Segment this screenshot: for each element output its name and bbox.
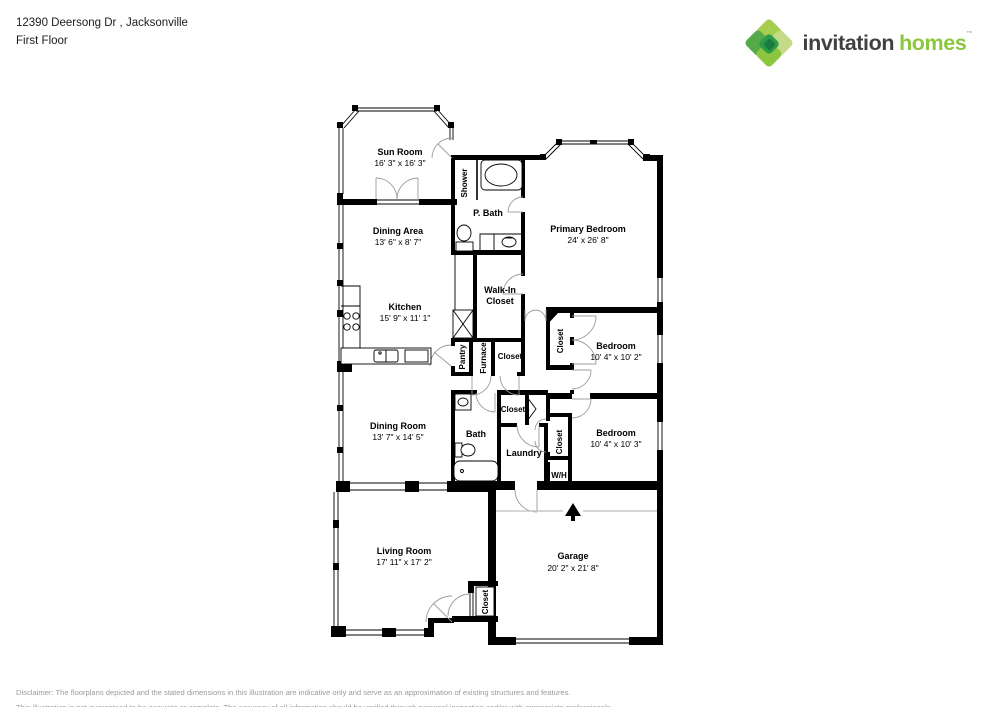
label-wh: W/H <box>551 471 567 480</box>
label-bath: Bath <box>466 429 486 439</box>
disclaimer-line1: Disclaimer: The floorplans depicted and … <box>16 686 996 701</box>
north-arrow-icon <box>565 503 581 521</box>
sink-icon <box>502 237 516 247</box>
label-walk-in-1: Walk-In <box>484 285 516 295</box>
dims-dining-room: 13' 7" x 14' 5" <box>372 432 423 442</box>
label-furnace: Furnace <box>479 342 488 374</box>
dims-dining-area: 13' 6" x 8' 7" <box>375 237 422 247</box>
stove-icon <box>344 313 350 319</box>
label-walk-in-2: Closet <box>486 296 514 306</box>
toilet-icon <box>456 242 473 251</box>
label-closet-entry: Closet <box>481 589 490 614</box>
label-sun-room: Sun Room <box>378 147 423 157</box>
dims-kitchen: 15' 9" x 11' 1" <box>380 313 431 323</box>
label-closet-hall: Closet <box>498 352 523 361</box>
label-dining-area: Dining Area <box>373 226 424 236</box>
label-living-room: Living Room <box>377 546 432 556</box>
label-p-bath: P. Bath <box>473 208 503 218</box>
label-closet-bath: Closet <box>501 405 526 414</box>
dims-bedroom2: 10' 4" x 10' 3" <box>590 439 641 449</box>
dims-sun-room: 16' 3" x 16' 3" <box>374 158 425 168</box>
label-primary-bedroom: Primary Bedroom <box>550 224 626 234</box>
label-laundry: Laundry <box>506 448 542 458</box>
label-bedroom2: Bedroom <box>596 428 636 438</box>
dims-living-room: 17' 11" x 17' 2" <box>376 557 431 567</box>
dims-garage: 20' 2" x 21' 8" <box>547 563 598 573</box>
label-pantry: Pantry <box>458 344 467 369</box>
label-closet-bed1: Closet <box>556 328 565 353</box>
utility-platform <box>453 310 473 338</box>
disclaimer: Disclaimer: The floorplans depicted and … <box>16 686 996 707</box>
room-labels: Sun Room 16' 3" x 16' 3" Dining Area 13'… <box>370 147 642 614</box>
label-closet-bed2: Closet <box>555 429 564 454</box>
dims-primary-bedroom: 24' x 26' 8" <box>567 235 608 245</box>
floorplan-drawing: Sun Room 16' 3" x 16' 3" Dining Area 13'… <box>0 0 1000 707</box>
disclaimer-line2: This illustration is not guaranteed to b… <box>16 701 996 707</box>
label-kitchen: Kitchen <box>388 302 421 312</box>
label-garage: Garage <box>557 551 588 561</box>
dims-bedroom1: 10' 4" x 10' 2" <box>590 352 641 362</box>
label-dining-room: Dining Room <box>370 421 426 431</box>
garage-markings <box>496 503 657 521</box>
label-bedroom1: Bedroom <box>596 341 636 351</box>
label-shower: Shower <box>460 169 469 198</box>
